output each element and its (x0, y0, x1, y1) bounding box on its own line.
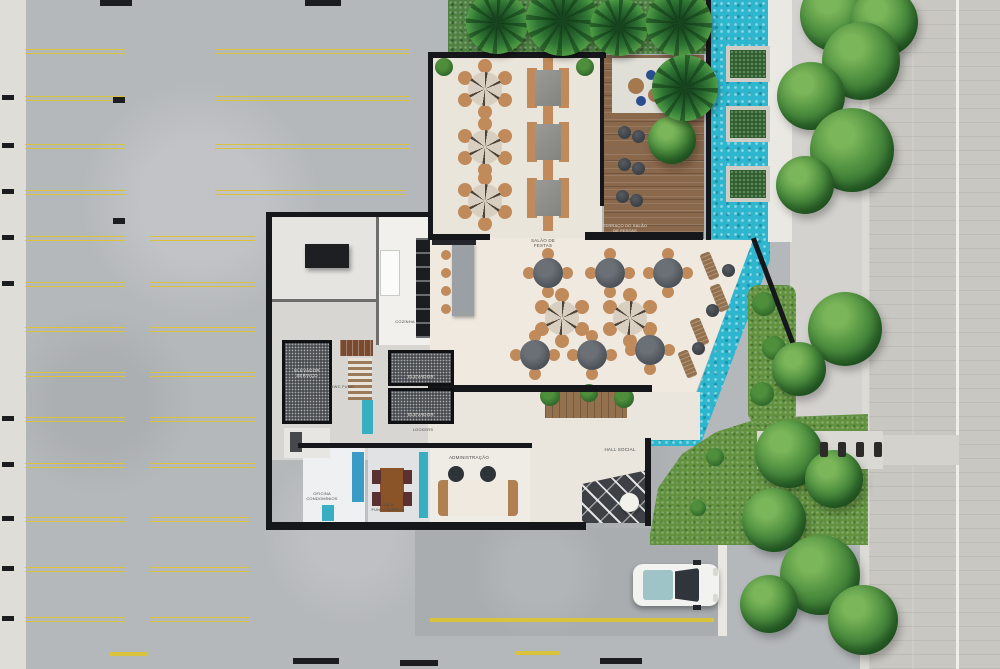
parking-black-tick (2, 281, 14, 286)
parking-stripe (150, 236, 255, 241)
parking-stripe (215, 96, 410, 101)
parking-black-tick (2, 516, 14, 521)
car-headlight (713, 568, 718, 576)
wall (266, 212, 272, 530)
parking-black-tick (113, 97, 125, 103)
parking-stripe (150, 617, 250, 622)
wall (298, 443, 532, 448)
street-tree (805, 450, 863, 508)
square-table-8 (535, 70, 561, 106)
parking-stripe (25, 517, 125, 522)
bollard (856, 442, 864, 457)
parking-stripe (25, 327, 125, 332)
deck-seat (618, 126, 631, 139)
shrub (690, 500, 706, 516)
column (620, 493, 639, 512)
bar-counter (452, 243, 474, 316)
parking-stripe (150, 417, 255, 422)
stairs (348, 358, 372, 400)
label-elevator-2: ELEVADOR (394, 412, 448, 417)
parking-stripe (150, 567, 250, 572)
parking-bottom-stripe (516, 651, 560, 655)
pool-planter (726, 166, 770, 202)
wall (266, 522, 586, 530)
parking-stripe (25, 372, 125, 377)
bollard (874, 442, 882, 457)
parking-black-tick (2, 462, 14, 467)
reception-desk (438, 480, 518, 516)
bollard (838, 442, 846, 457)
shrub (750, 382, 774, 406)
wall (428, 385, 652, 392)
parking-stripe (215, 190, 405, 195)
staff-chair (403, 470, 412, 484)
parking-stripe (25, 49, 125, 54)
parking-bottom-tick (293, 658, 339, 664)
car-roof-glass (643, 570, 673, 600)
square-table-8 (535, 180, 561, 216)
parking-black-tick (2, 616, 14, 621)
crossing-walkway-street (883, 435, 959, 465)
parking-black-tick (2, 189, 14, 194)
kitchen-appliance (380, 250, 400, 296)
patio-table (628, 78, 644, 94)
label-staff-wc: BWC FUNC. (330, 385, 356, 390)
palm-tree (590, 0, 648, 56)
car (633, 562, 719, 608)
label-staff-room: SALA FUNCIONÁRIOS (368, 503, 408, 513)
wall (645, 438, 651, 526)
deck-seat (632, 162, 645, 175)
deck-seat (616, 190, 629, 203)
patio-pouf-blue (636, 96, 646, 106)
parking-stripe (150, 327, 255, 332)
parking-stripe (25, 236, 125, 241)
label-social-hall: HALL SOCIAL (596, 447, 644, 452)
round-table-4 (533, 258, 563, 288)
parking-stripe (25, 463, 125, 468)
parking-stripe (25, 144, 125, 149)
round-table-6 (468, 184, 502, 218)
label-condo-office: OFICINA CONDOMÍNIOS (305, 492, 339, 502)
parking-bottom-stripe (110, 652, 148, 656)
label-administration: ADMINISTRAÇÃO (438, 455, 500, 460)
deck-seat (632, 130, 645, 143)
teal-band (419, 452, 428, 518)
partition (272, 299, 378, 302)
street-tree (828, 585, 898, 655)
street-tree (772, 342, 826, 396)
square-table-8 (535, 124, 561, 160)
indoor-plant (435, 58, 453, 76)
round-table-4 (595, 258, 625, 288)
round-table-6 (468, 72, 502, 106)
blue-cabinet (352, 452, 364, 502)
label-party-hall: SALÃO DE FESTAS (522, 238, 564, 249)
wc-fixture (290, 432, 302, 452)
parking-stripe (25, 96, 125, 101)
palm-tree (652, 55, 718, 121)
wall (266, 212, 432, 217)
parking-stripe (150, 463, 255, 468)
round-table-4 (653, 258, 683, 288)
parking-black-tick (113, 218, 125, 224)
parking-black-tick (2, 235, 14, 240)
bar-stool (441, 250, 451, 260)
pool-pouf (706, 304, 719, 317)
driveway-yellow-line (430, 618, 714, 622)
trash-chute (362, 400, 373, 434)
partition (376, 217, 379, 345)
parking-black-tick (100, 0, 132, 6)
parking-stripe (150, 517, 250, 522)
parking-black-tick (2, 416, 14, 421)
car-windshield (675, 568, 699, 602)
label-terrace: TERRAÇO DO SALÃO DE FESTAS (600, 224, 650, 234)
parking-stripe (25, 190, 125, 195)
parking-bottom-tick (600, 658, 642, 664)
reception-chair (480, 466, 496, 482)
parking-stripe (25, 282, 125, 287)
meeting-table (305, 244, 349, 268)
label-lockers: LOCKERS (400, 428, 446, 433)
parking-stripe (150, 282, 255, 287)
parking-black-tick (2, 566, 14, 571)
bar-stool (441, 268, 451, 278)
car-mirror (693, 605, 701, 610)
round-table-4 (520, 340, 550, 370)
floor-plan-render: COZINHA ELEVADOR SERVIÇO BWC FUNC. ELEVA… (0, 0, 1000, 669)
service-elevator (282, 340, 332, 424)
teal-equipment (322, 505, 334, 521)
wall (428, 52, 606, 58)
wall (428, 234, 490, 240)
parking-black-tick (2, 143, 14, 148)
parking-stripe (25, 617, 125, 622)
car-mirror (693, 560, 701, 565)
street-lane-line (956, 0, 959, 669)
parking-stripe (25, 417, 125, 422)
label-kitchen: COZINHA (383, 320, 427, 325)
deck-seat (618, 158, 631, 171)
deck-seat (630, 194, 643, 207)
round-table-4 (577, 340, 607, 370)
pool-planter (726, 106, 770, 142)
elevator-2 (388, 388, 454, 424)
staff-chair (372, 470, 381, 484)
parking-black-tick (305, 0, 341, 6)
bollard (820, 442, 828, 457)
car-headlight (713, 594, 718, 602)
label-elevator-1: ELEVADOR (394, 374, 448, 379)
reception-chair (448, 466, 464, 482)
pool-planter (726, 46, 770, 82)
elevator-1 (388, 350, 454, 386)
party-hall-floor (430, 55, 602, 239)
round-table-6 (545, 301, 579, 335)
street (868, 0, 1000, 669)
round-table-6 (468, 130, 502, 164)
label-service-elevator: ELEVADOR SERVIÇO (284, 368, 330, 379)
parking-stripe (215, 144, 410, 149)
street-tree (740, 575, 798, 633)
round-table-6 (613, 301, 647, 335)
bar-stool (441, 286, 451, 296)
pool-pouf (722, 264, 735, 277)
wall (600, 58, 604, 206)
round-table-4 (635, 335, 665, 365)
parking-bottom-tick (400, 660, 438, 666)
indoor-plant (576, 58, 594, 76)
bar-stool (441, 304, 451, 314)
pool-pouf (692, 342, 705, 355)
deck-tree (648, 116, 696, 164)
parking-stripe (150, 372, 255, 377)
shrub (706, 448, 724, 466)
parking-black-tick (2, 95, 14, 100)
street-tree (776, 156, 834, 214)
parking-stripe (215, 49, 410, 54)
shelf (340, 340, 373, 356)
parking-stripe (25, 567, 125, 572)
